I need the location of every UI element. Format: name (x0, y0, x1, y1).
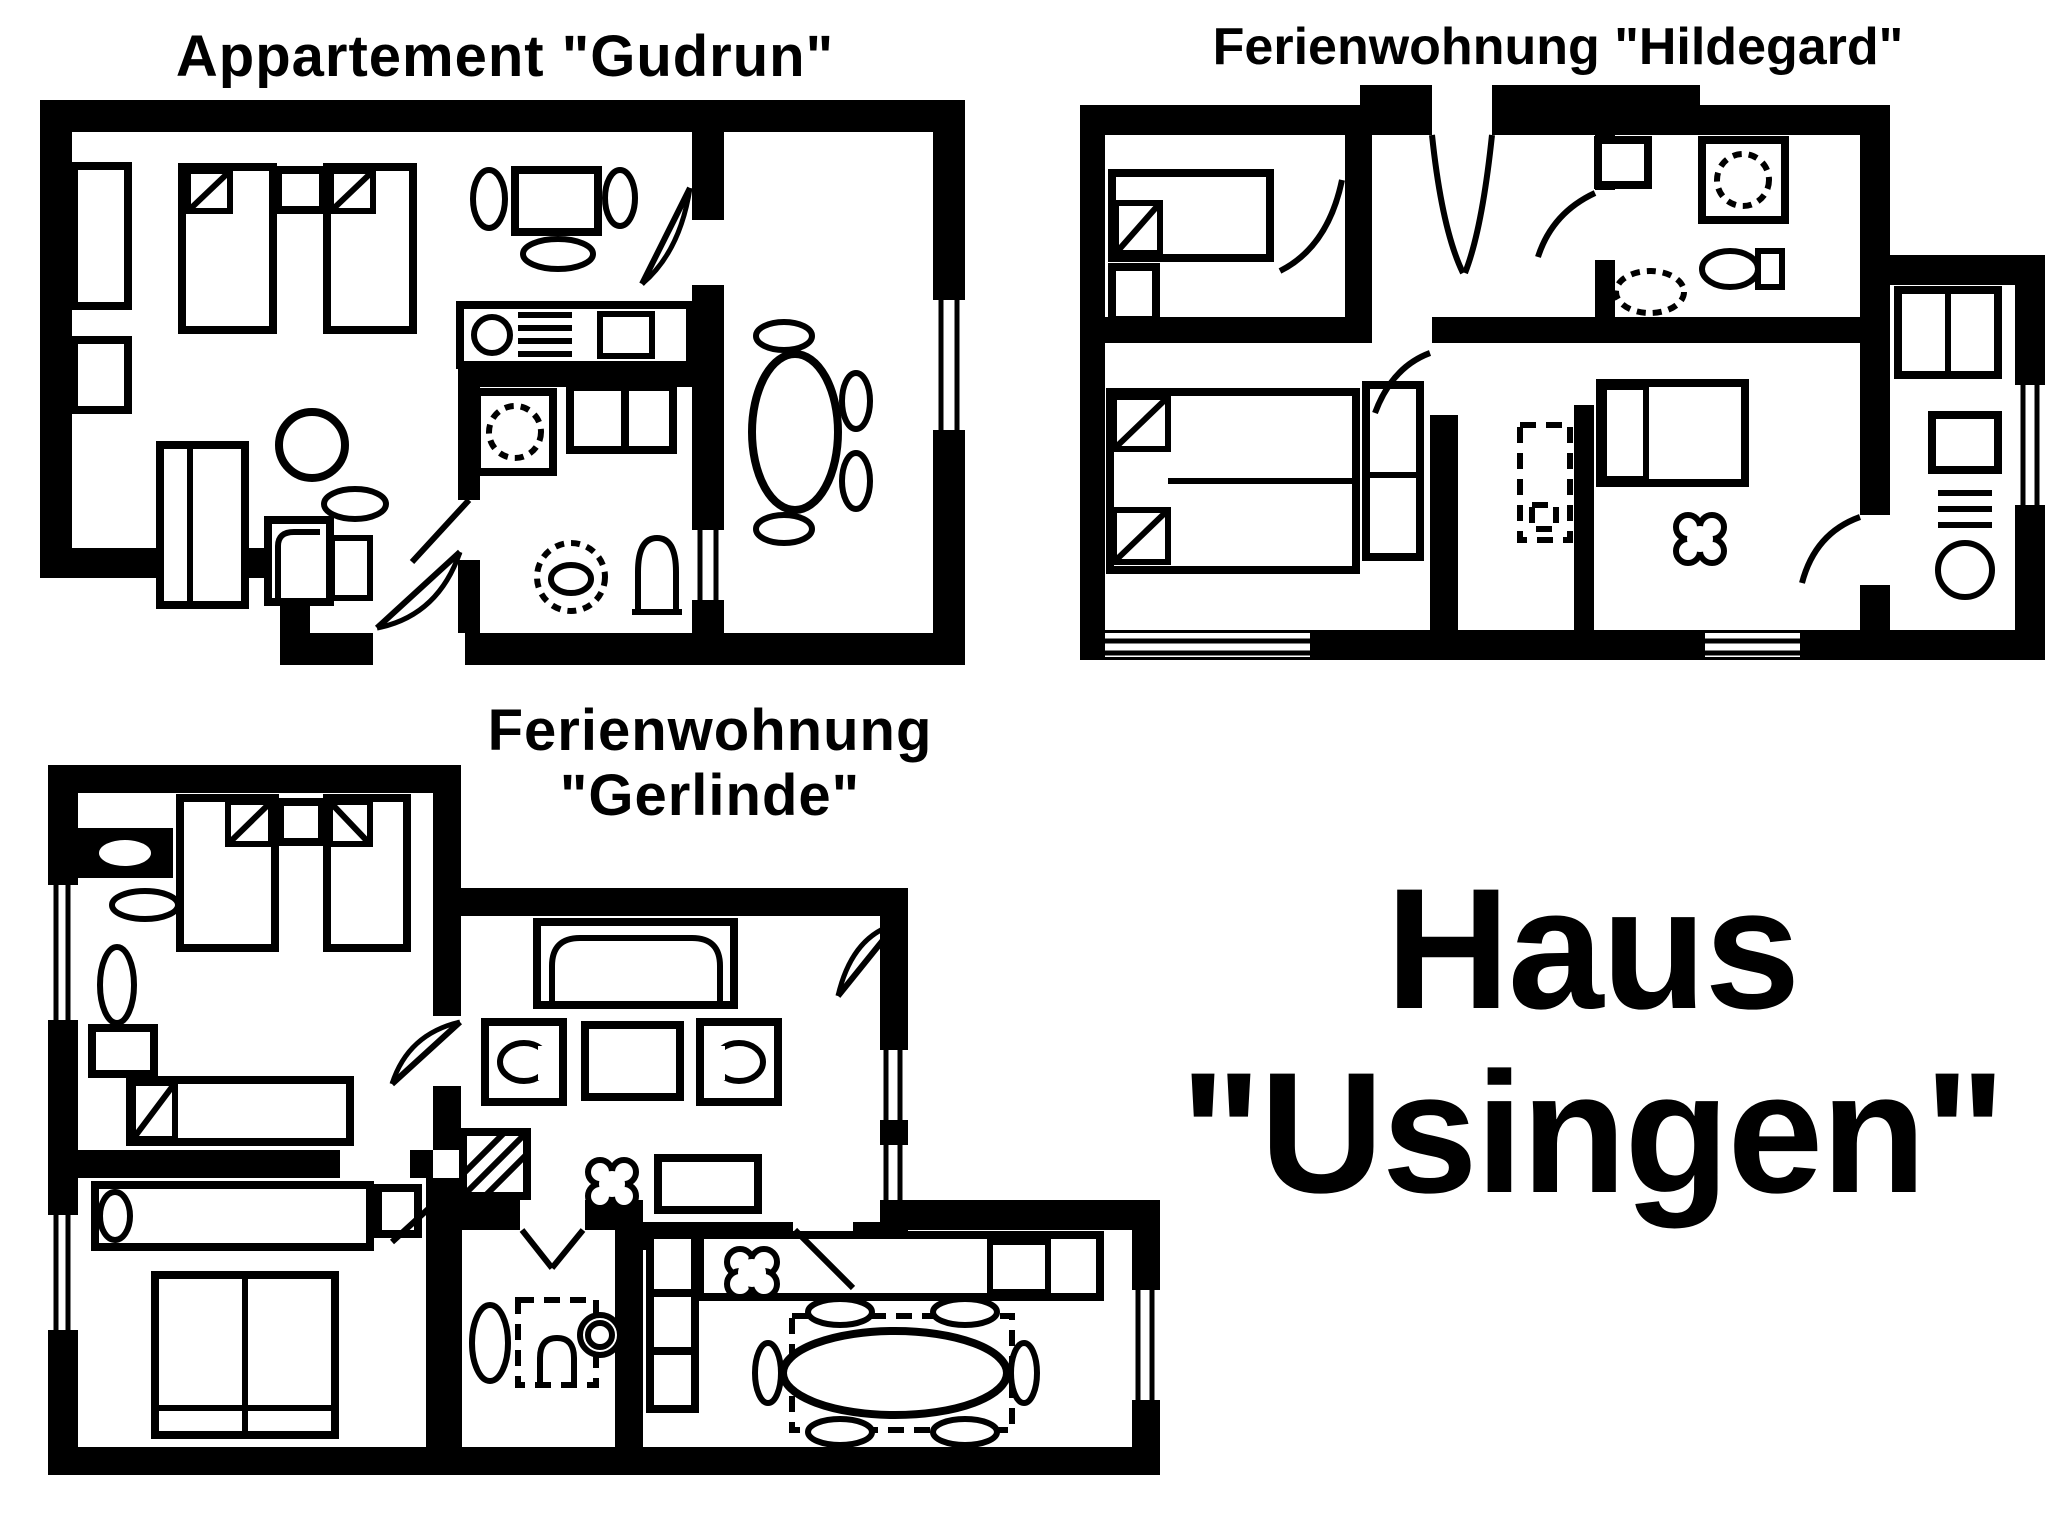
wardrobe-icon (160, 445, 245, 605)
single-bed-icon (95, 1185, 370, 1247)
stove-icon (474, 317, 510, 353)
clover-table-icon (1676, 515, 1724, 563)
gudrun-title: Appartement "Gudrun" (176, 24, 834, 89)
sink-icon (1938, 543, 1992, 597)
nightstand-icon (278, 170, 323, 210)
window-icon (2023, 385, 2037, 505)
gerlinde-title-line1: Ferienwohnung (488, 698, 933, 763)
window-icon (700, 530, 716, 600)
chair-icon (755, 1343, 781, 1403)
toilet-icon (1702, 251, 1782, 287)
gerlinde-plan (48, 765, 1160, 1475)
pedestal-icon (472, 1305, 508, 1381)
stove-icon (1938, 493, 1992, 525)
coffee-table-icon (585, 1025, 680, 1097)
shelf-icon (78, 828, 173, 878)
window-icon (56, 885, 68, 1020)
sink-icon (600, 314, 652, 356)
hildegard-plan (1080, 85, 2045, 660)
rug-icon (523, 239, 593, 269)
tv-cabinet-icon (658, 1158, 758, 1210)
house-name-line1: Haus (1386, 853, 1799, 1045)
single-bed-icon (130, 1080, 350, 1142)
chair-icon (933, 1299, 997, 1325)
nightstand-icon (1112, 267, 1156, 320)
washbasin-icon (580, 1315, 620, 1355)
entry-door-icon (1432, 135, 1492, 273)
kitchen-counter-icon (1898, 290, 1998, 597)
window-icon (1705, 633, 1800, 657)
armchair-icon (700, 1022, 778, 1102)
dining-table-icon (752, 322, 870, 543)
round-table-icon (279, 412, 386, 519)
dining-table-icon (755, 1299, 1037, 1445)
armchair-icon (268, 520, 370, 602)
tv-icon (515, 170, 598, 232)
chair-icon (324, 489, 386, 519)
single-bed-icon (1600, 383, 1745, 483)
clover-table-icon (588, 1160, 636, 1208)
gerlinde-title-line2: "Gerlinde" (560, 763, 860, 828)
door-swing-icon (1802, 517, 1860, 583)
stool-icon (1616, 271, 1684, 313)
armchair-icon (485, 1022, 563, 1102)
double-bed-icon (1110, 392, 1356, 570)
single-bed-icon (180, 798, 275, 948)
door-swing-icon (377, 552, 460, 628)
single-bed-icon (327, 167, 413, 330)
double-bed-icon (155, 1275, 335, 1435)
chair-icon (808, 1299, 872, 1325)
rug-icon (112, 891, 178, 919)
window-icon (1138, 1290, 1152, 1400)
shower-icon (1702, 140, 1785, 220)
single-bed-icon (1112, 173, 1270, 258)
stove-icon (990, 1242, 1048, 1292)
single-bed-icon (182, 167, 273, 330)
fridge-icon (1932, 415, 1998, 470)
mirror-icon (100, 947, 134, 1023)
chair-icon (842, 373, 870, 429)
plant-icon (473, 170, 505, 228)
cabinet-icon (650, 1235, 695, 1409)
radiator-icon (74, 166, 128, 410)
shower-icon (477, 392, 553, 472)
built-in-closet-icon (1520, 425, 1570, 540)
sink-icon (570, 387, 673, 450)
washbasin-icon (537, 543, 605, 611)
door-swing-icon (522, 1230, 583, 1268)
chair-icon (756, 322, 812, 350)
sink-icon (1598, 140, 1648, 185)
dresser-icon (92, 1028, 154, 1074)
floorplans-svg: Appartement "Gudrun" Ferienwohnung "Hild… (0, 0, 2048, 1536)
plant-icon (605, 170, 635, 226)
single-bed-icon (327, 798, 407, 948)
sink-icon (727, 1249, 777, 1297)
door-swing-icon (1538, 193, 1595, 257)
door-swing-icon (1280, 180, 1342, 271)
floorplan-sheet: Appartement "Gudrun" Ferienwohnung "Hild… (0, 0, 2048, 1536)
toilet-icon (540, 1338, 574, 1383)
window-icon (941, 300, 957, 430)
window-icon (56, 1215, 68, 1330)
sofa-icon (537, 922, 734, 1005)
chair-icon (808, 1419, 872, 1445)
kitchen-counter-icon (700, 1235, 1100, 1297)
hatch-box-icon (463, 1132, 527, 1196)
door-swing-icon (392, 1022, 460, 1084)
toilet-icon (632, 538, 682, 612)
chair-icon (1011, 1343, 1037, 1403)
chair-icon (756, 515, 812, 543)
door-swing-icon (642, 188, 690, 284)
house-name-line2: "Usingen" (1180, 1037, 2004, 1229)
window-icon (1105, 633, 1310, 657)
gudrun-plan (40, 100, 965, 665)
chair-icon (933, 1419, 997, 1445)
hildegard-title: Ferienwohnung "Hildegard" (1213, 18, 1904, 76)
kitchen-counter-icon (460, 305, 690, 365)
chair-icon (842, 453, 870, 509)
nightstand-icon (280, 802, 322, 842)
